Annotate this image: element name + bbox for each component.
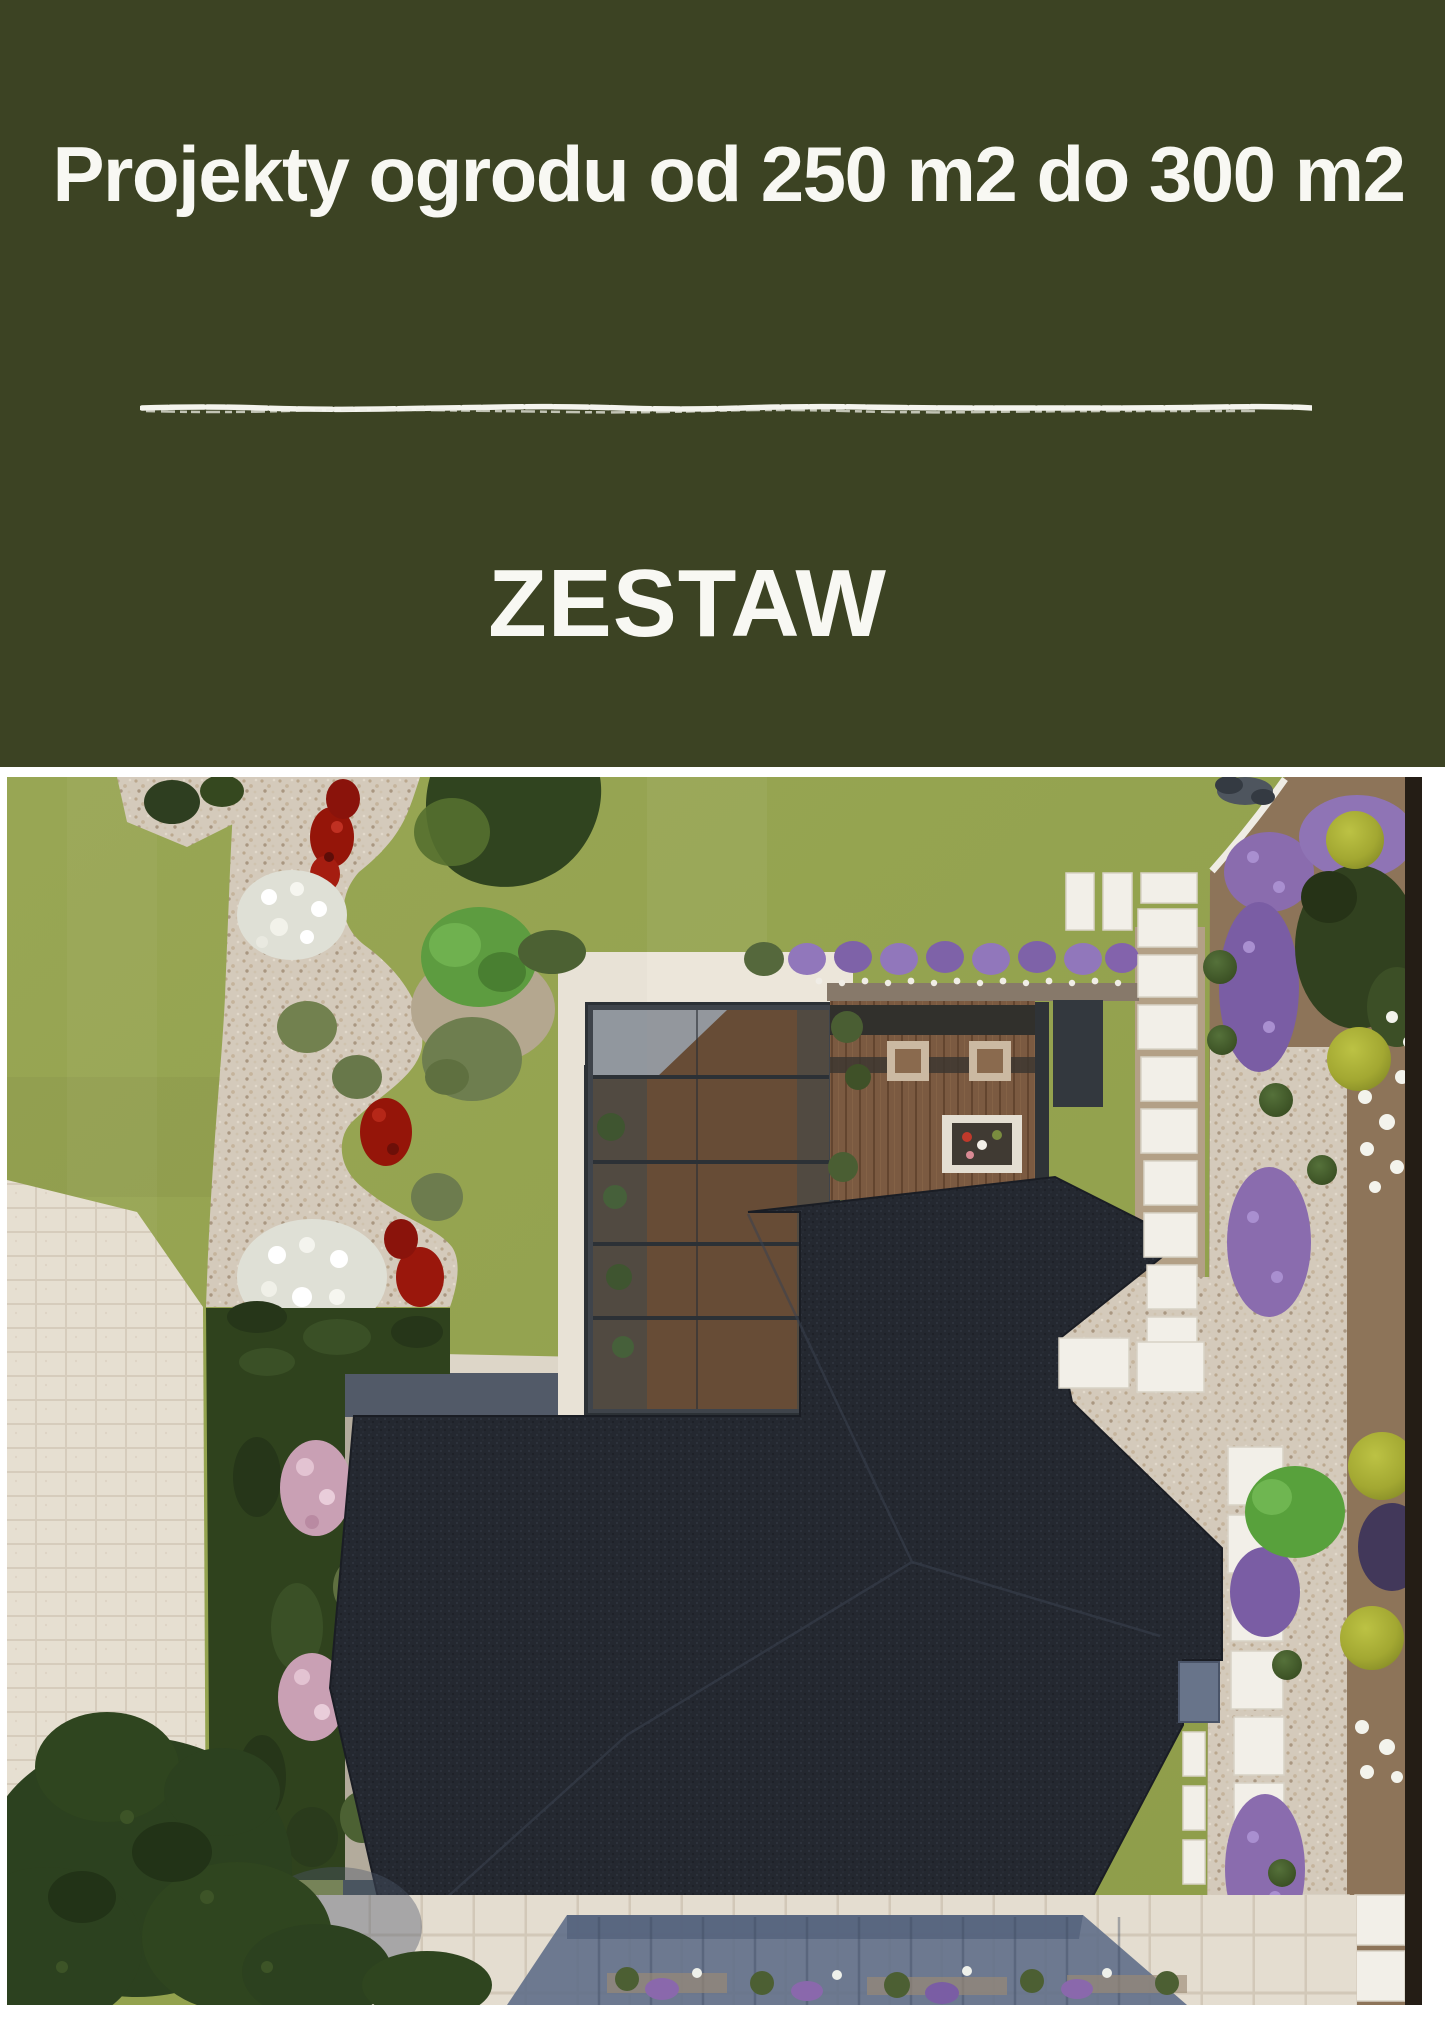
poster-page: Projekty ogrodu od 250 m2 do 300 m2 ZEST… — [0, 0, 1445, 2044]
garden-plan-photo — [7, 777, 1422, 2005]
subtitle-zestaw: ZESTAW — [0, 556, 1410, 652]
page-title: Projekty ogrodu od 250 m2 do 300 m2 — [6, 128, 1445, 222]
photo-right-edge — [1405, 777, 1422, 2005]
header-band: Projekty ogrodu od 250 m2 do 300 m2 ZEST… — [0, 0, 1445, 767]
chalk-divider — [140, 399, 1312, 417]
